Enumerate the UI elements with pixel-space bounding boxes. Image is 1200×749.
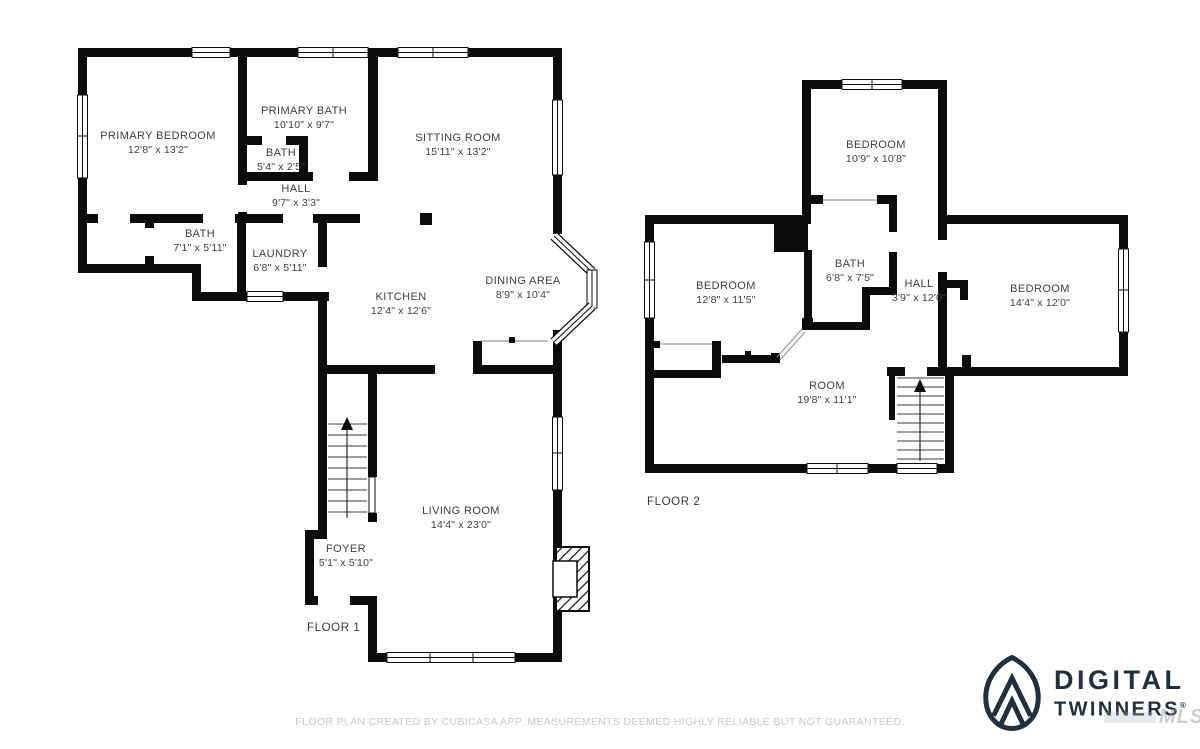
floorplan-drawing (0, 0, 1200, 749)
floor1-openings (481, 337, 548, 343)
room-label-foyer: FOYER 5'1" x 5'10" (319, 543, 373, 570)
room-label-bath-f1: BATH 7'1" x 5'11" (173, 228, 226, 255)
floor2-caption: FLOOR 2 (647, 496, 700, 508)
disclaimer-text: FLOOR PLAN CREATED BY CUBICASA APP. MEAS… (0, 716, 1200, 728)
room-label-bath-small: BATH 5'4" x 2'5" (257, 147, 305, 174)
floorplan-page: PRIMARY BEDROOM 12'8" x 13'2" PRIMARY BA… (0, 0, 1200, 749)
room-label-living-room: LIVING ROOM 14'4" x 23'0" (422, 505, 500, 532)
room-label-primary-bath: PRIMARY BATH 10'10" x 9'7" (261, 105, 347, 132)
stair-railing (369, 477, 375, 513)
floor1-caption: FLOOR 1 (307, 622, 360, 634)
room-label-dining-area: DINING AREA 8'9" x 10'4" (485, 275, 560, 302)
stair-top-opening (905, 366, 927, 377)
chimney-block (774, 216, 808, 252)
room-label-primary-bedroom: PRIMARY BEDROOM 12'8" x 13'2" (100, 130, 216, 157)
room-label-bedroom-left: BEDROOM 12'8" x 11'5" (696, 280, 756, 307)
room-label-bedroom-right: BEDROOM 14'4" x 12'0" (1010, 283, 1070, 310)
room-label-laundry: LAUNDRY 6'8" x 5'11" (252, 248, 307, 275)
floor1-stairs (328, 417, 367, 518)
stairs-up-arrow (914, 379, 926, 392)
room-label-bath-f2: BATH 6'8" x 7'5" (826, 258, 874, 285)
room-label-hall-f2: HALL 3'9" x 12'0" (892, 278, 946, 305)
room-label-kitchen: KITCHEN 12'4" x 12'6" (371, 291, 431, 318)
room-label-room: ROOM 19'8" x 11'1" (797, 380, 856, 407)
room-label-sitting-room: SITTING ROOM 15'11" x 13'2" (415, 132, 500, 159)
structural-column (420, 213, 432, 225)
brand-line1: DIGITAL (1054, 667, 1186, 694)
room-label-bedroom-top: BEDROOM 10'9" x 10'8" (846, 139, 906, 166)
fireplace (553, 547, 589, 611)
room-label-hall-f1: HALL 9'7" x 3'3" (272, 183, 320, 210)
floor2-stairs (897, 378, 944, 461)
